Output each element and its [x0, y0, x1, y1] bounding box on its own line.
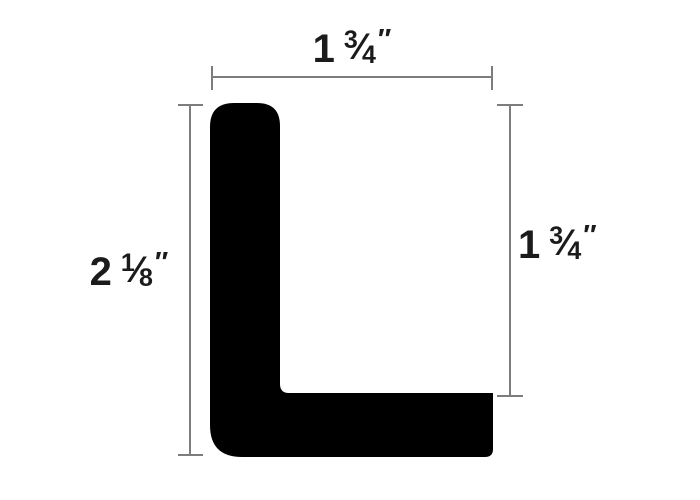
top-dimension-line: [212, 66, 492, 90]
fraction-denominator: 8: [139, 266, 153, 291]
fraction-denominator: 4: [567, 239, 581, 264]
dimension-fraction: 3⁄4: [344, 31, 376, 68]
fraction-numerator: 1: [121, 251, 135, 276]
fraction-numerator: 3: [344, 28, 358, 53]
inch-mark: ″: [378, 25, 391, 53]
dimension-label-top: 13⁄4″: [212, 29, 492, 69]
dimension-whole-number: 2: [90, 252, 112, 292]
dimension-whole-number: 1: [313, 29, 335, 69]
inch-mark: ″: [155, 248, 168, 276]
inch-mark: ″: [583, 221, 596, 249]
l-profile-shape: [210, 103, 493, 457]
dimension-fraction: 3⁄4: [549, 227, 581, 264]
dimension-drawing: 13⁄4″ 21⁄8″ 13⁄4″: [0, 0, 700, 500]
fraction-denominator: 4: [362, 43, 376, 68]
dimension-fraction: 1⁄8: [121, 254, 153, 291]
dimension-whole-number: 1: [518, 225, 540, 265]
dimension-label-right: 13⁄4″: [518, 225, 597, 265]
dimension-label-left: 21⁄8″: [70, 252, 188, 292]
